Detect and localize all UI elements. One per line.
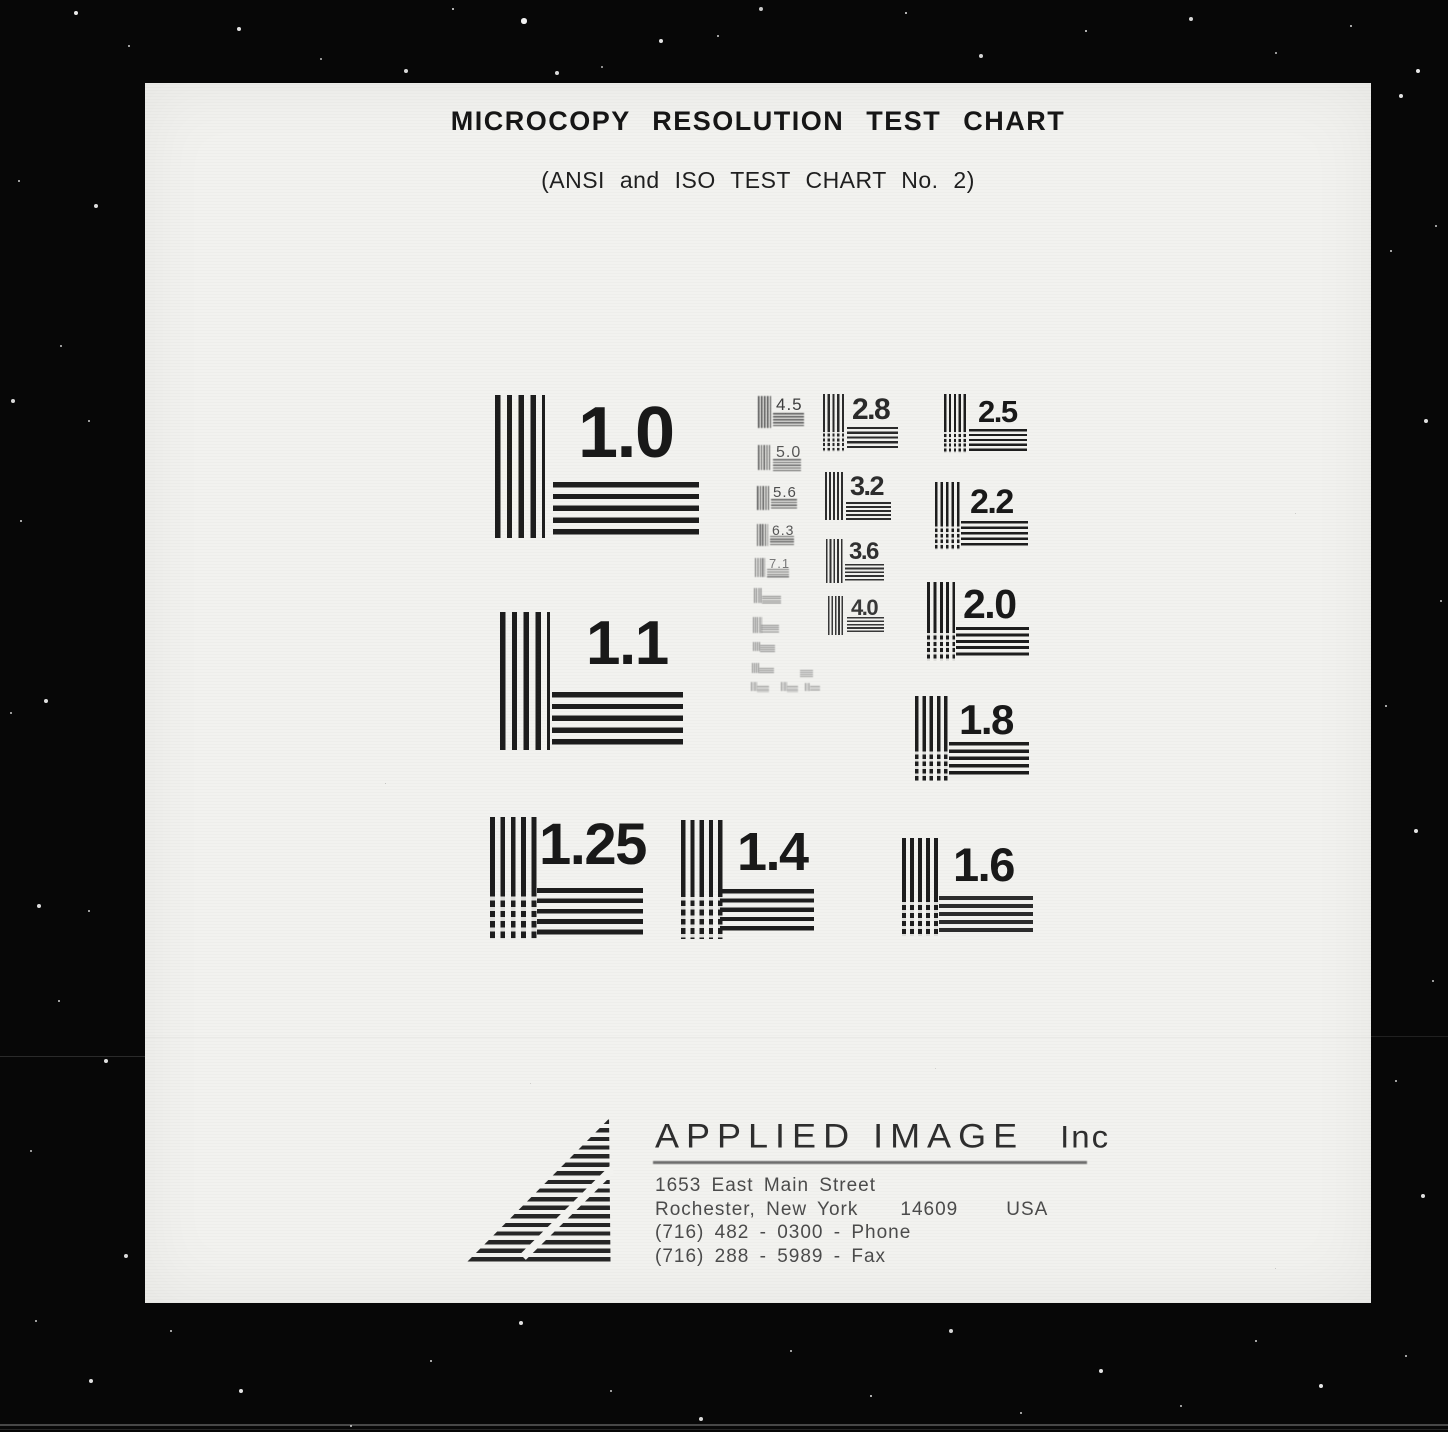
- faded-row-4-extra-mark: [800, 670, 813, 677]
- company-wordmark: APPLIED IMAGEInc: [655, 1116, 1110, 1156]
- pattern-1-6-vertical-bars: [902, 838, 938, 936]
- pattern-1-8-vertical-bars: [915, 696, 948, 781]
- pattern-2-5-horizontal-bars: [969, 429, 1027, 452]
- faded-row-1-horizontal-bars: [762, 596, 781, 604]
- faded-row-5-block-b-hbars: [787, 686, 798, 692]
- pattern-5-6-vertical-bars: [757, 486, 769, 510]
- pattern-5-6-horizontal-bars: [771, 499, 797, 510]
- company-suffix: Inc: [1060, 1119, 1110, 1155]
- faded-row-5-block-c-hbars: [810, 686, 820, 691]
- pattern-1-1-label: 1.1: [586, 613, 668, 675]
- pattern-6-3-vertical-bars: [757, 524, 768, 546]
- address-city: Rochester, New York: [655, 1199, 858, 1220]
- pattern-4-5-label: 4.5: [776, 396, 803, 413]
- pattern-1-0-label: 1.0: [578, 397, 674, 469]
- pattern-5-6-label: 5.6: [773, 485, 797, 500]
- company-address-block: 1653 East Main Street Rochester, New Yor…: [655, 1174, 1048, 1268]
- address-phone: (716) 482 - 0300 - Phone: [655, 1221, 1048, 1245]
- pattern-5-0-vertical-bars: [758, 445, 770, 470]
- pattern-2-0-label: 2.0: [963, 584, 1016, 625]
- pattern-3-2-horizontal-bars: [846, 502, 891, 520]
- pattern-4-5-horizontal-bars: [773, 413, 804, 426]
- pattern-2-8-label: 2.8: [852, 395, 889, 425]
- pattern-1-25-vertical-bars: [490, 817, 537, 939]
- pattern-7-1-vertical-bars: [755, 558, 765, 577]
- pattern-1-0-vertical-bars: [495, 395, 545, 538]
- pattern-2-0-vertical-bars: [927, 582, 955, 661]
- pattern-2-2-horizontal-bars: [961, 521, 1028, 547]
- pattern-4-0-label: 4.0: [851, 597, 877, 619]
- pattern-1-0-horizontal-bars: [553, 482, 699, 538]
- pattern-2-5-vertical-bars: [944, 394, 966, 453]
- pattern-1-1-horizontal-bars: [552, 692, 683, 746]
- pattern-1-4-label: 1.4: [737, 825, 808, 879]
- address-city-line: Rochester, New York14609USA: [655, 1198, 1048, 1222]
- address-fax: (716) 288 - 5989 - Fax: [655, 1245, 1048, 1269]
- pattern-2-2-vertical-bars: [935, 482, 960, 550]
- scan-line-artifact: [145, 1037, 1371, 1038]
- faded-row-5-block-a-hbars: [757, 686, 769, 692]
- pattern-6-3-horizontal-bars: [770, 536, 794, 546]
- pattern-2-2-label: 2.2: [970, 485, 1013, 519]
- pattern-2-5-label: 2.5: [978, 396, 1017, 427]
- address-street: 1653 East Main Street: [655, 1174, 1048, 1198]
- applied-image-logo: [465, 1111, 612, 1264]
- pattern-1-8-horizontal-bars: [949, 742, 1029, 776]
- test-chart-page: MICROCOPY RESOLUTION TEST CHART (ANSI an…: [145, 83, 1371, 1303]
- pattern-2-8-vertical-bars: [823, 394, 844, 452]
- address-zip: 14609: [900, 1199, 958, 1220]
- pattern-3-2-vertical-bars: [825, 472, 843, 520]
- pattern-3-2-label: 3.2: [850, 473, 883, 500]
- address-country: USA: [1006, 1199, 1048, 1220]
- pattern-1-25-label: 1.25: [539, 816, 646, 874]
- pattern-2-0-horizontal-bars: [956, 627, 1029, 657]
- pattern-4-0-horizontal-bars: [847, 617, 884, 632]
- faded-row-3-horizontal-bars: [760, 645, 775, 652]
- faded-row-2-horizontal-bars: [761, 625, 779, 633]
- page-noise-speckles: [145, 83, 146, 84]
- film-bottom-edge-faint: [0, 1429, 1448, 1430]
- pattern-1-4-vertical-bars: [681, 820, 723, 939]
- wordmark-underline: [653, 1161, 1087, 1164]
- pattern-1-8-label: 1.8: [959, 699, 1013, 741]
- pattern-1-4-horizontal-bars: [720, 889, 814, 932]
- pattern-6-3-label: 6.3: [772, 523, 794, 537]
- pattern-1-6-label: 1.6: [953, 841, 1014, 888]
- film-noise-speckles: [0, 0, 2, 2]
- film-scan-frame: MICROCOPY RESOLUTION TEST CHART (ANSI an…: [0, 0, 1448, 1432]
- pattern-1-1-vertical-bars: [500, 612, 550, 750]
- pattern-3-6-vertical-bars: [826, 539, 843, 583]
- pattern-1-6-horizontal-bars: [939, 896, 1033, 933]
- pattern-4-0-vertical-bars: [828, 596, 844, 635]
- company-name: APPLIED IMAGE: [655, 1116, 1024, 1155]
- pattern-3-6-label: 3.6: [849, 540, 878, 564]
- pattern-4-5-vertical-bars: [758, 396, 771, 428]
- pattern-7-1-horizontal-bars: [767, 569, 789, 578]
- page-subtitle: (ANSI and ISO TEST CHART No. 2): [145, 167, 1371, 194]
- pattern-2-8-horizontal-bars: [847, 427, 898, 449]
- page-title: MICROCOPY RESOLUTION TEST CHART: [145, 106, 1371, 137]
- film-scratch-left: [0, 1056, 145, 1057]
- pattern-5-0-horizontal-bars: [773, 459, 801, 471]
- faded-row-4-horizontal-bars: [759, 668, 774, 674]
- pattern-1-25-horizontal-bars: [537, 888, 643, 936]
- pattern-3-6-horizontal-bars: [845, 564, 884, 581]
- film-bottom-edge: [0, 1424, 1448, 1426]
- film-scratch-right: [1371, 1036, 1448, 1037]
